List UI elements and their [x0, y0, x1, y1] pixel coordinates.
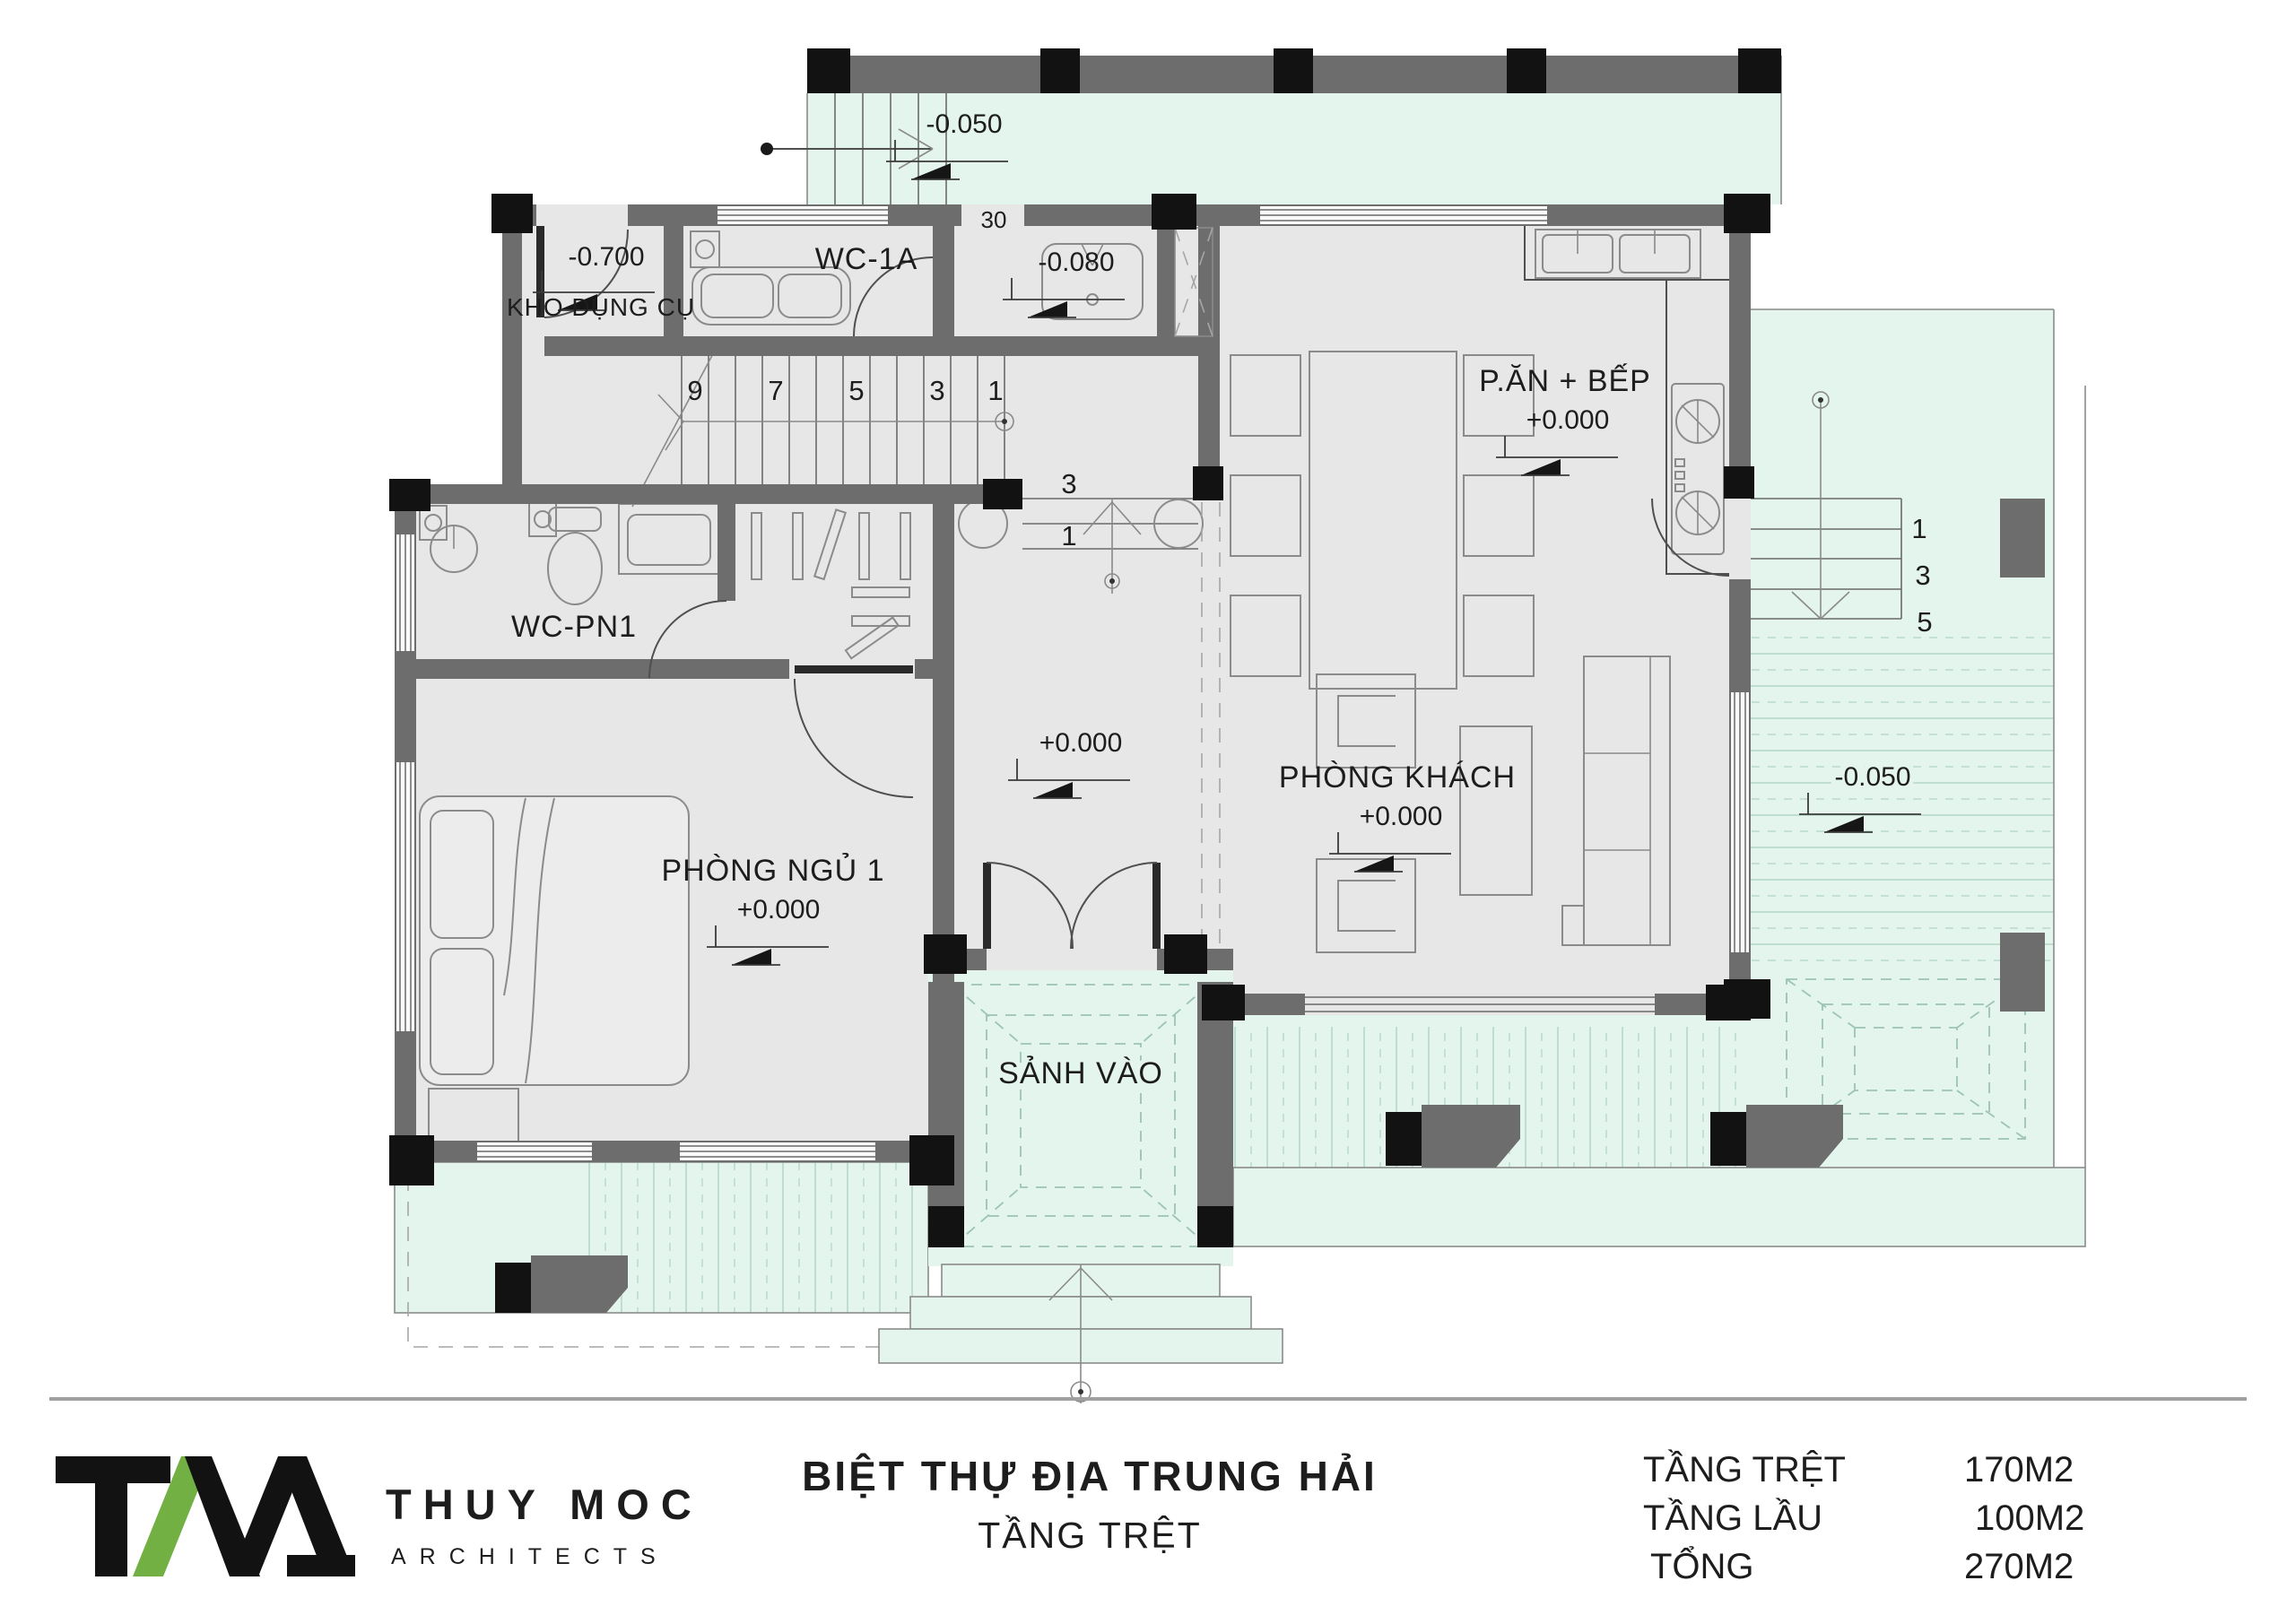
level-kho: -0.700 [568, 242, 644, 272]
label-bedroom: PHÒNG NGỦ 1 [661, 854, 884, 888]
bed-symbol [420, 796, 689, 1085]
svg-text:9: 9 [687, 375, 702, 406]
level-living: +0.000 [1360, 802, 1443, 831]
svg-text:3: 3 [1915, 560, 1930, 591]
area-row-label: TẦNG LẦU [1643, 1497, 1822, 1538]
area-table: TẦNG TRỆT 170M2 TẦNG LẦU 100M2 TỔNG 270M… [1643, 1448, 2084, 1586]
area-row-value: 100M2 [1975, 1498, 2084, 1538]
label-wcpn1: WC-PN1 [511, 610, 637, 644]
area-row-value: 270M2 [1964, 1547, 2074, 1586]
footer-divider [49, 1397, 2247, 1401]
label-kitchen: P.ĂN + BẾP [1479, 364, 1651, 398]
window-symbol [396, 762, 414, 1031]
area-row-value: 170M2 [1964, 1450, 2074, 1489]
svg-text:1: 1 [1911, 513, 1926, 544]
window-symbol [717, 206, 888, 224]
logo-t-bar [56, 1456, 170, 1483]
label-kho: KHO DỤNG CỤ [507, 293, 695, 321]
level-kitchen: +0.000 [1526, 405, 1610, 435]
level-hall: +0.000 [1039, 728, 1123, 758]
level-top-terrace: -0.050 [926, 109, 1002, 139]
label-entry: SẢNH VÀO [998, 1056, 1163, 1090]
brand-tagline: ARCHITECTS [391, 1544, 669, 1569]
area-row-label: TỔNG [1650, 1544, 1754, 1586]
label-living: PHÒNG KHÁCH [1279, 760, 1516, 795]
window-symbol [477, 1142, 592, 1160]
logo-t-stem [95, 1483, 127, 1576]
terrace-pillar [2000, 933, 2045, 1012]
window-symbol [1260, 206, 1547, 224]
svg-text:3: 3 [929, 375, 944, 406]
architecture-sheet: -0.050 -0.700 KHO DỤNG CỤ WC-1A 30 -0.08… [0, 0, 2296, 1624]
terrace-pillar [2000, 499, 2045, 578]
brand-text: THUY MOC [386, 1481, 703, 1528]
svg-text:3: 3 [1061, 468, 1076, 499]
area-row-label: TẦNG TRỆT [1643, 1448, 1846, 1489]
column-pedestal [1710, 1105, 1843, 1168]
svg-text:5: 5 [1917, 606, 1932, 638]
dim-30: 30 [981, 206, 1007, 233]
window-symbol [680, 1142, 875, 1160]
sheet-subtitle: TẦNG TRỆT [978, 1515, 1202, 1556]
logo: THUY MOC ARCHITECTS [56, 1456, 703, 1576]
level-right-terrace: -0.050 [1834, 762, 1910, 792]
sheet-title-block: BIỆT THỰ ĐỊA TRUNG HẢI TẦNG TRỆT [802, 1453, 1378, 1556]
sheet-title: BIỆT THỰ ĐỊA TRUNG HẢI [802, 1453, 1378, 1499]
right-terrace [1751, 309, 2085, 1168]
floor-plan-drawing: -0.050 -0.700 KHO DỤNG CỤ WC-1A 30 -0.08… [0, 0, 2296, 1624]
window-symbol [1731, 692, 1749, 952]
window-symbol [396, 534, 414, 651]
column-pedestal [495, 1255, 628, 1313]
label-wc1a: WC-1A [815, 242, 918, 276]
level-bedroom: +0.000 [737, 895, 821, 925]
svg-text:7: 7 [768, 375, 783, 406]
level-small-wc: -0.080 [1038, 248, 1114, 277]
svg-text:5: 5 [848, 375, 864, 406]
column-pedestal [1386, 1105, 1520, 1168]
svg-text:1: 1 [1061, 520, 1076, 551]
svg-text:1: 1 [987, 375, 1003, 406]
